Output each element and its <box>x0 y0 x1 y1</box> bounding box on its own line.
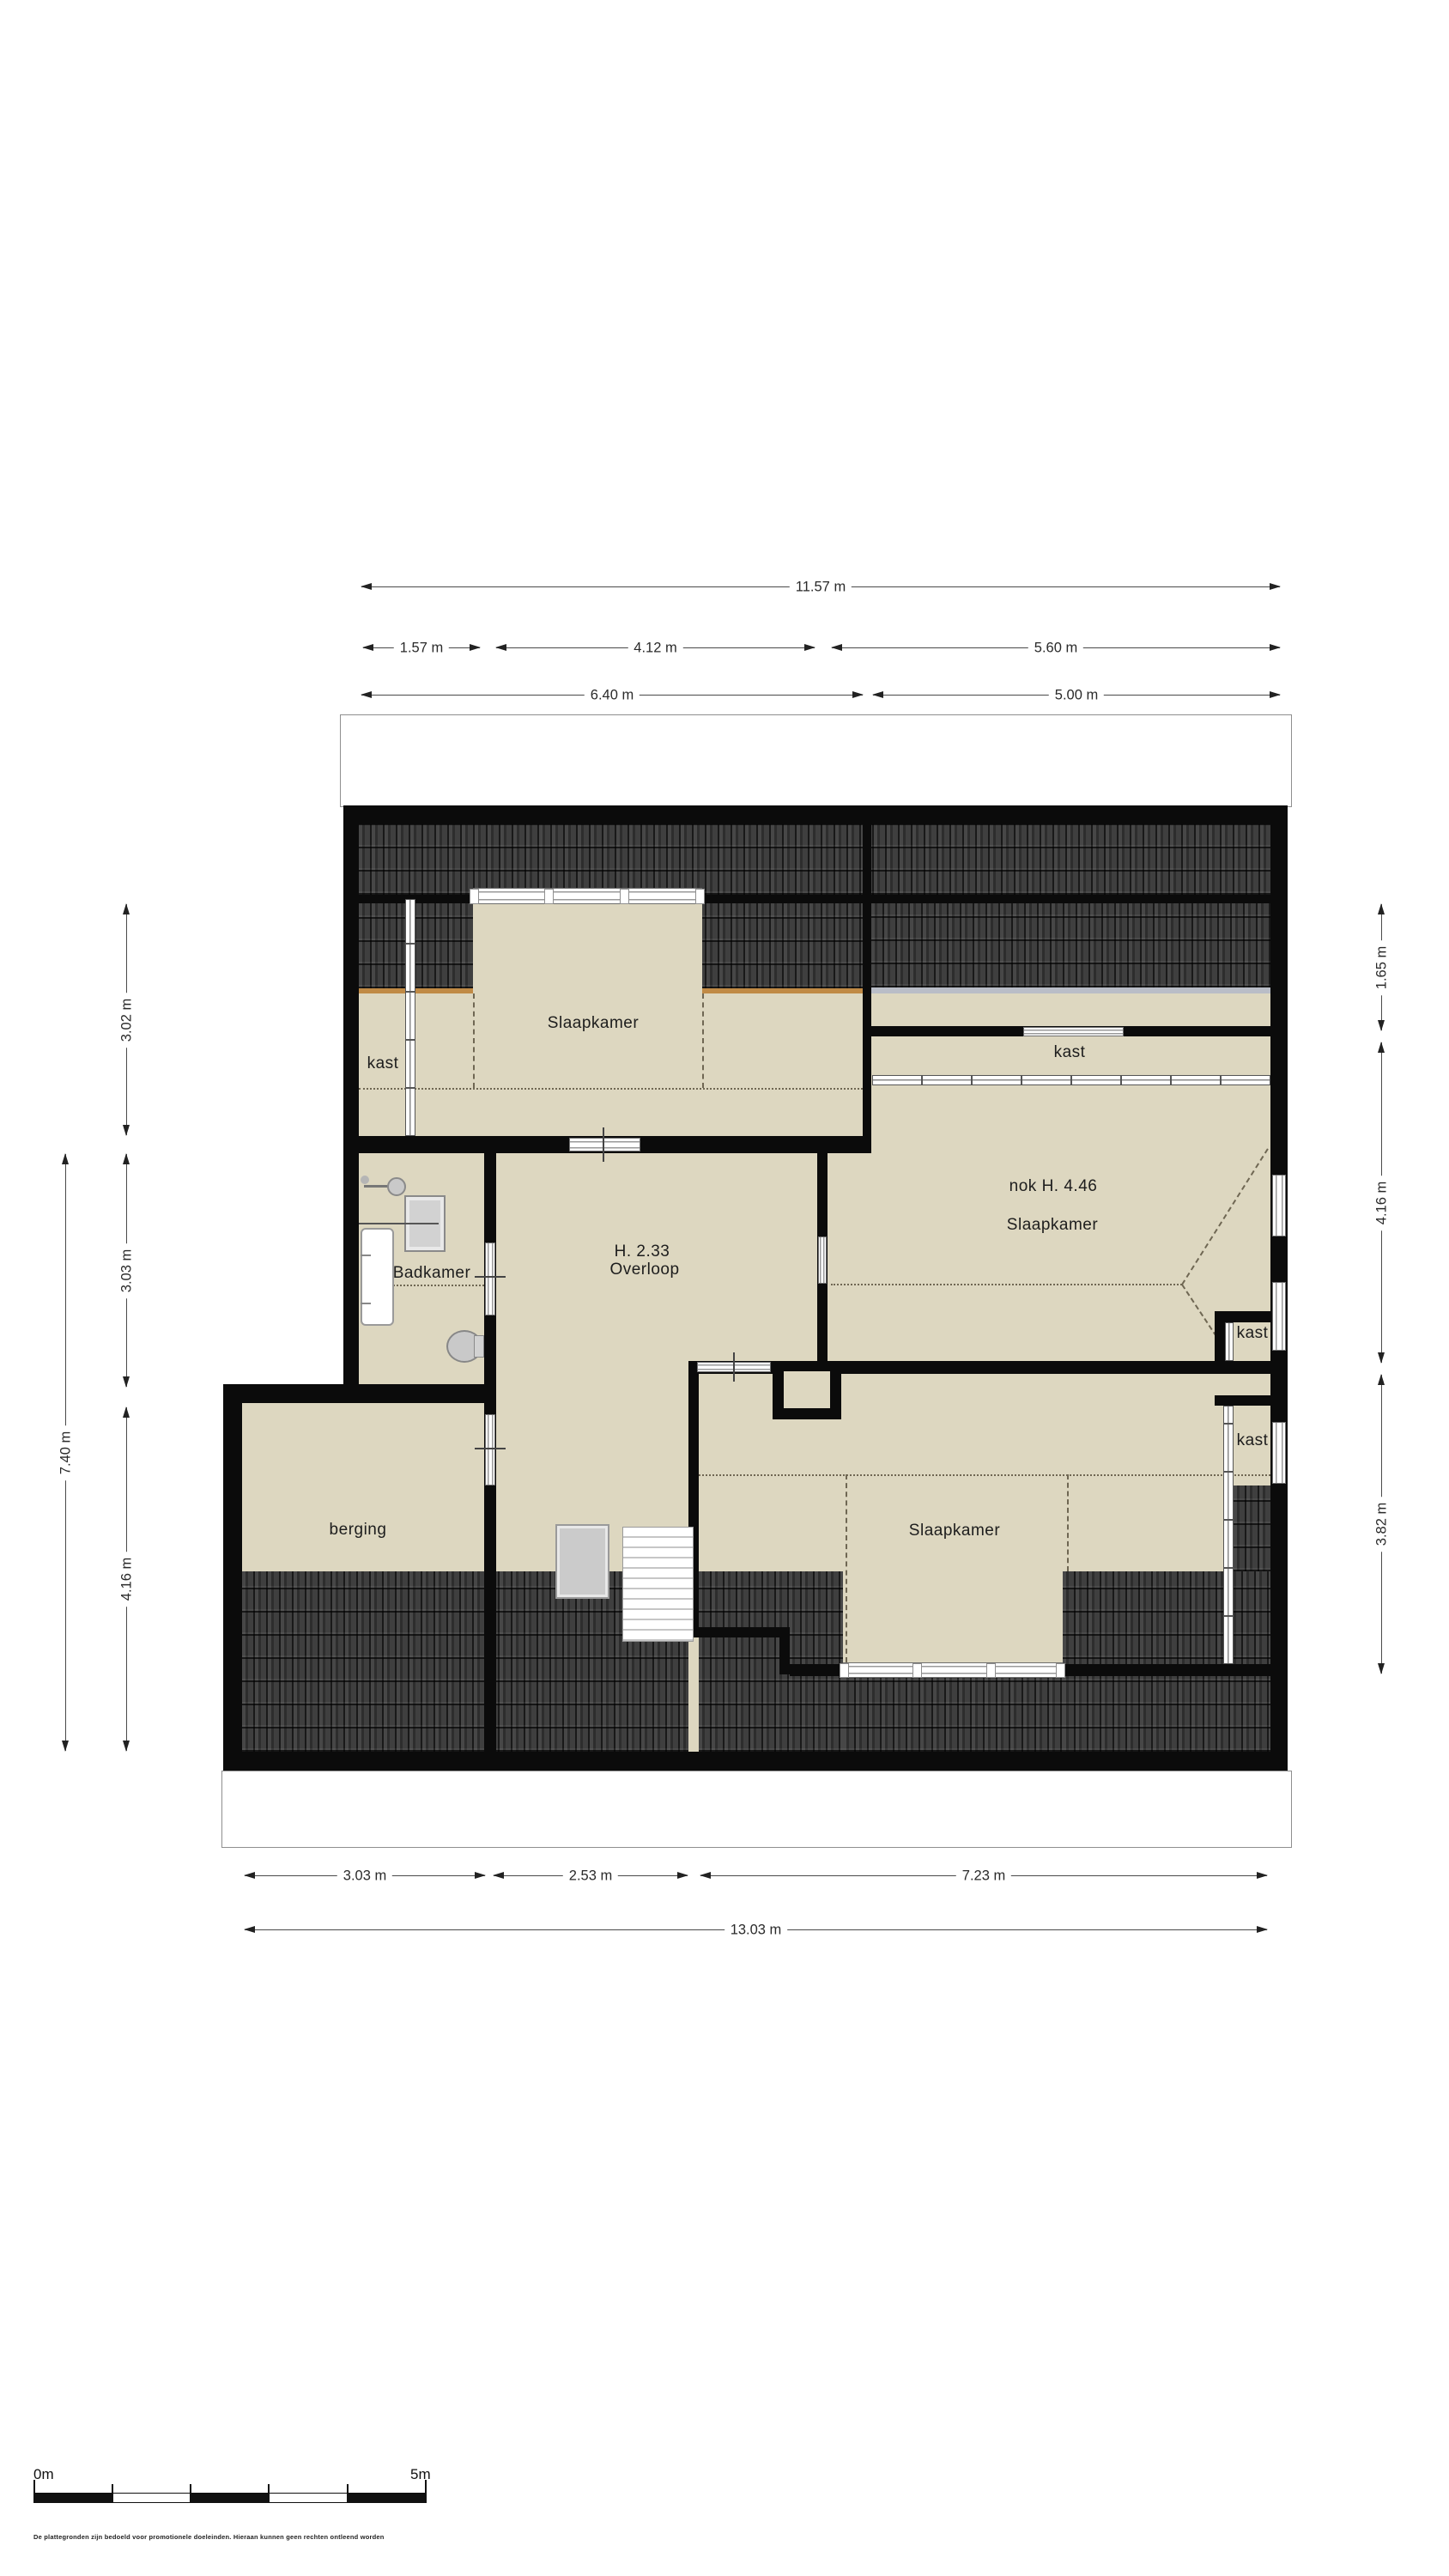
door-berging <box>485 1414 495 1485</box>
window-jamb <box>695 889 705 904</box>
staircase <box>622 1527 694 1642</box>
dimension-label: 13.03 m <box>724 1923 788 1939</box>
floorplan-canvas: Slaapkamerkastkastnok H. 4.46SlaapkamerH… <box>0 0 1449 2576</box>
faucet-tick <box>361 1303 371 1304</box>
scale-tick <box>347 2484 349 2503</box>
wall-bottom-dormer-west <box>790 1664 843 1676</box>
closet-front-top-right <box>872 1075 1270 1085</box>
scale-tick <box>190 2484 191 2503</box>
top-margin-box <box>340 714 1292 807</box>
wall-outer-bottom <box>223 1752 1288 1771</box>
door-tick <box>603 1127 604 1162</box>
washbasin-counter <box>361 1228 394 1326</box>
window-right-3 <box>1272 1422 1286 1484</box>
window-dormer-top <box>473 888 702 904</box>
window-jamb <box>912 1663 922 1678</box>
dormer-dash-right <box>702 993 704 1088</box>
scale-segment <box>348 2493 427 2503</box>
window-jamb <box>840 1663 849 1678</box>
scale-segment <box>112 2493 191 2503</box>
dimension-bottom-2.53m: 2.53 m <box>493 1868 688 1884</box>
dimension-label: 4.16 m <box>119 1552 136 1607</box>
bottom-dormer-dash-left <box>846 1474 847 1662</box>
toilet-tank <box>474 1335 484 1358</box>
kneewall-line-bottom <box>699 1474 1270 1476</box>
window-right-1 <box>1272 1175 1286 1236</box>
room-label-kast-right-lower: kast <box>1237 1431 1269 1450</box>
dimension-label: 1.65 m <box>1374 939 1391 994</box>
room-label-badkamer: Badkamer <box>393 1264 471 1283</box>
wall-outer-left-lower <box>223 1384 242 1771</box>
scale-tick <box>268 2484 270 2503</box>
window-jamb <box>986 1663 996 1678</box>
cabinet-wall-line <box>359 1223 439 1224</box>
dimension-right-1.65m: 1.65 m <box>1374 903 1390 1031</box>
pocket-duct-inner <box>784 1371 830 1408</box>
window-jamb <box>470 889 479 904</box>
dimension-bottom-13.03m: 13.03 m <box>244 1923 1268 1938</box>
dimension-left-7.40m: 7.40 m <box>58 1153 74 1752</box>
dimension-top-11.57m: 11.57 m <box>361 580 1281 595</box>
eaves-right <box>871 987 1270 993</box>
stair-landing <box>555 1524 609 1599</box>
dimension-label: 3.03 m <box>337 1868 392 1885</box>
scale-tick <box>33 2480 35 2503</box>
dimension-label: 6.40 m <box>585 688 640 704</box>
radiator-knob-small <box>361 1176 369 1184</box>
dimension-top-5.60m: 5.60 m <box>831 641 1281 656</box>
window-jamb <box>1056 1663 1065 1678</box>
closet-front-top-left <box>405 899 415 1136</box>
dimension-label: 3.82 m <box>1374 1497 1391 1552</box>
kneewall-line-topleft <box>359 1088 863 1090</box>
dormer-dash-left <box>473 993 475 1088</box>
roof-bottom-left <box>242 1571 688 1752</box>
room-label-kast-right-upper: kast <box>1237 1324 1269 1343</box>
dimension-top-4.12m: 4.12 m <box>495 641 815 656</box>
dimension-bottom-7.23m: 7.23 m <box>700 1868 1268 1884</box>
dimension-label: 4.12 m <box>627 641 682 657</box>
scale-start-label: 0m <box>33 2466 54 2483</box>
window-jamb <box>544 889 554 904</box>
roof-kast-right-column <box>1234 1485 1270 1571</box>
dimension-bottom-3.03m: 3.03 m <box>244 1868 486 1884</box>
dimension-left-3.03m: 3.03 m <box>119 1153 135 1388</box>
window-kastTR <box>1023 1027 1124 1036</box>
room-label-kast-top-right: kast <box>1054 1043 1086 1062</box>
room-label-nok-height: nok H. 4.46 <box>1009 1177 1098 1196</box>
dimension-right-3.82m: 3.82 m <box>1374 1374 1390 1674</box>
dimension-left-3.02m: 3.02 m <box>119 903 135 1136</box>
closet-front-kast2 <box>1223 1406 1234 1664</box>
room-label-slaapkamer-bottom: Slaapkamer <box>909 1522 1000 1540</box>
door-slaapkamerTL <box>569 1138 640 1151</box>
room-label-overloop-height: H. 2.33 <box>615 1242 670 1261</box>
faucet-tick <box>361 1255 371 1256</box>
roof-band2-right <box>871 903 1270 987</box>
bottom-dormer-dash-right <box>1067 1474 1069 1571</box>
bottom-margin-box <box>221 1771 1292 1848</box>
dimension-label: 7.40 m <box>58 1425 75 1479</box>
door-tick <box>475 1448 506 1449</box>
scale-segment <box>191 2493 269 2503</box>
window-jamb <box>620 889 629 904</box>
room-label-overloop: Overloop <box>609 1261 679 1279</box>
scale-segment <box>269 2493 348 2503</box>
dimension-label: 2.53 m <box>563 1868 618 1885</box>
dimension-label: 3.02 m <box>119 992 136 1047</box>
ridge-line-right-room <box>831 1284 1182 1285</box>
window-bottom-dormer <box>843 1662 1063 1678</box>
dimension-top-1.57m: 1.57 m <box>362 641 481 656</box>
dimension-top-5.00m: 5.00 m <box>872 688 1281 703</box>
closet-front-kast1 <box>1225 1322 1234 1361</box>
wall-jog-v <box>779 1627 790 1674</box>
wall-outer-top <box>343 805 1288 824</box>
roof-bottom-right <box>1063 1571 1270 1752</box>
dimension-top-6.40m: 6.40 m <box>361 688 864 703</box>
roof-bottom-under-window <box>843 1676 1063 1752</box>
door-badkamer <box>485 1242 495 1315</box>
scale-tick <box>112 2484 113 2503</box>
dimension-label: 4.16 m <box>1374 1175 1391 1230</box>
scale-tick <box>425 2480 427 2503</box>
wall-divider-center <box>863 816 871 1153</box>
dimension-label: 1.57 m <box>394 641 449 657</box>
dimension-right-4.16m: 4.16 m <box>1374 1042 1390 1364</box>
scale-segment <box>33 2493 112 2503</box>
dimension-left-4.16m: 4.16 m <box>119 1406 135 1752</box>
wall-kast1-west <box>1215 1311 1225 1374</box>
roof-bottom-midleft <box>699 1571 843 1752</box>
disclaimer-text: De plattegronden zijn bedoeld voor promo… <box>33 2533 385 2541</box>
radiator-knob <box>387 1177 406 1196</box>
scale-end-label: 5m <box>410 2466 431 2483</box>
wall-bottom-dormer-east <box>1063 1664 1288 1676</box>
window-tick <box>733 1352 735 1382</box>
wall-jog-h <box>688 1627 790 1637</box>
room-label-slaapkamer-top-left: Slaapkamer <box>548 1014 639 1033</box>
dimension-label: 3.03 m <box>119 1242 136 1297</box>
wall-outer-left-upper <box>343 805 359 1403</box>
opening-overloop-east <box>818 1236 827 1284</box>
dimension-label: 11.57 m <box>790 580 852 596</box>
wall-kast2-north <box>1215 1395 1270 1406</box>
dimension-label: 5.00 m <box>1049 688 1104 704</box>
dimension-label: 5.60 m <box>1028 641 1083 657</box>
window-right-2 <box>1272 1282 1286 1351</box>
room-label-slaapkamer-right: Slaapkamer <box>1007 1216 1098 1235</box>
wall-outer-step <box>223 1384 496 1403</box>
door-tick <box>475 1276 506 1278</box>
room-label-kast-top-left: kast <box>367 1054 399 1073</box>
room-label-berging: berging <box>330 1521 387 1540</box>
dormer-top-left <box>473 903 702 993</box>
dimension-label: 7.23 m <box>956 1868 1011 1885</box>
roof-band-top <box>359 824 1270 895</box>
